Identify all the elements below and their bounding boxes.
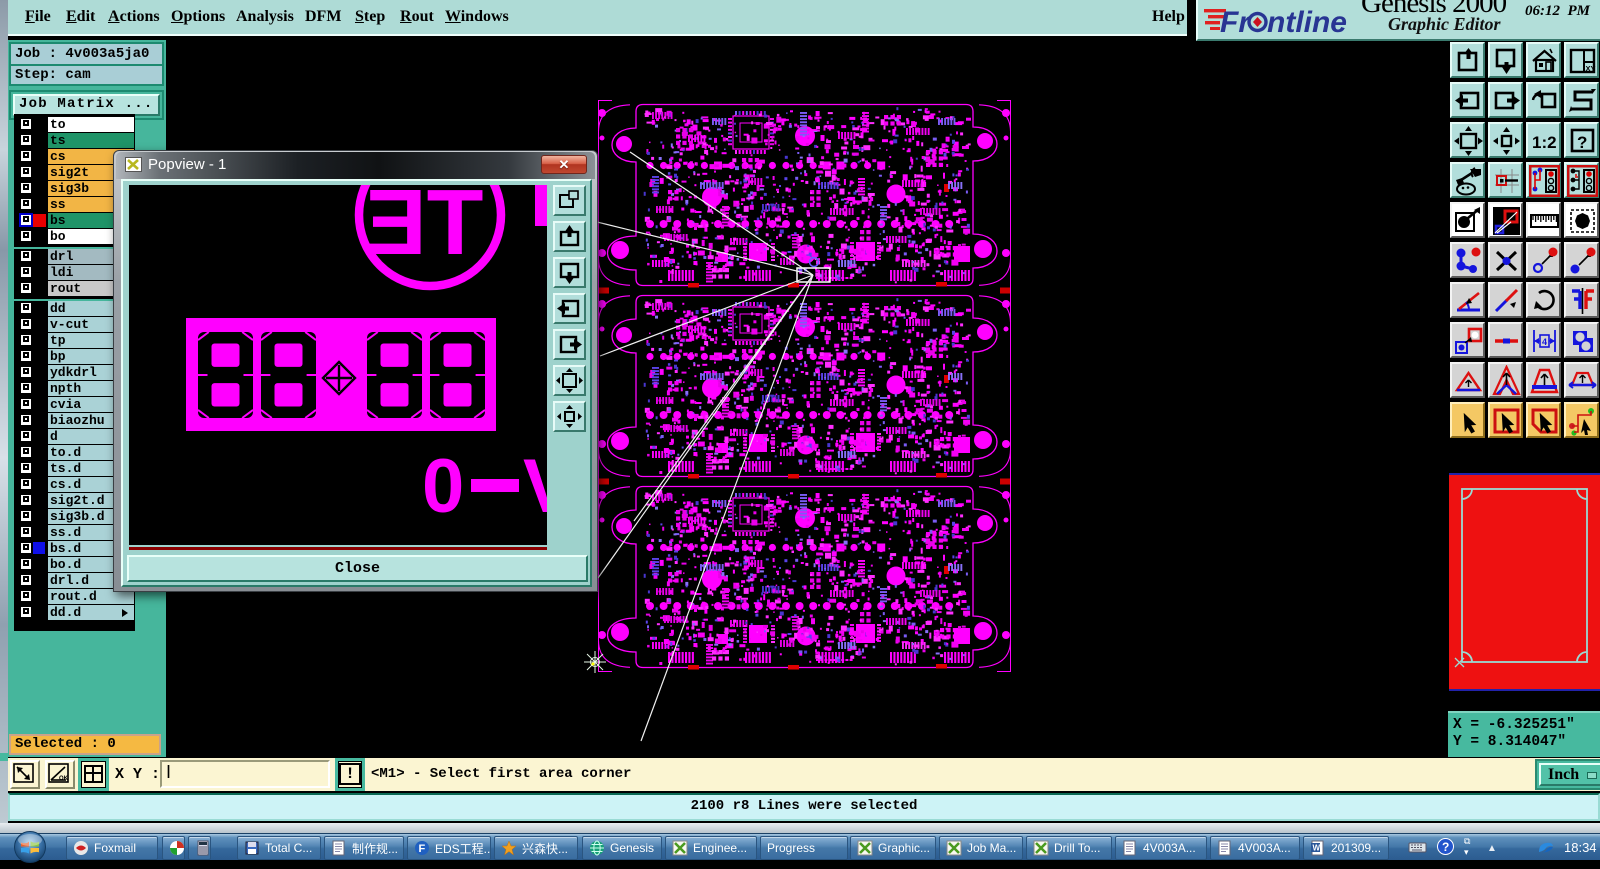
svg-text:XY: XY	[1586, 64, 1596, 73]
svg-text:0: 0	[422, 444, 464, 529]
svg-text:TE: TE	[365, 185, 484, 274]
svg-text:4: 4	[1542, 337, 1547, 347]
svg-text:1:2: 1:2	[1532, 133, 1557, 152]
svg-text:V: V	[523, 444, 547, 529]
svg-text:?: ?	[1442, 840, 1449, 854]
svg-text:OK: OK	[59, 776, 69, 782]
svg-text:ntline: ntline	[1267, 6, 1347, 39]
svg-text:?: ?	[1577, 133, 1587, 152]
svg-text:W: W	[1313, 844, 1321, 853]
svg-text:F: F	[419, 843, 426, 855]
